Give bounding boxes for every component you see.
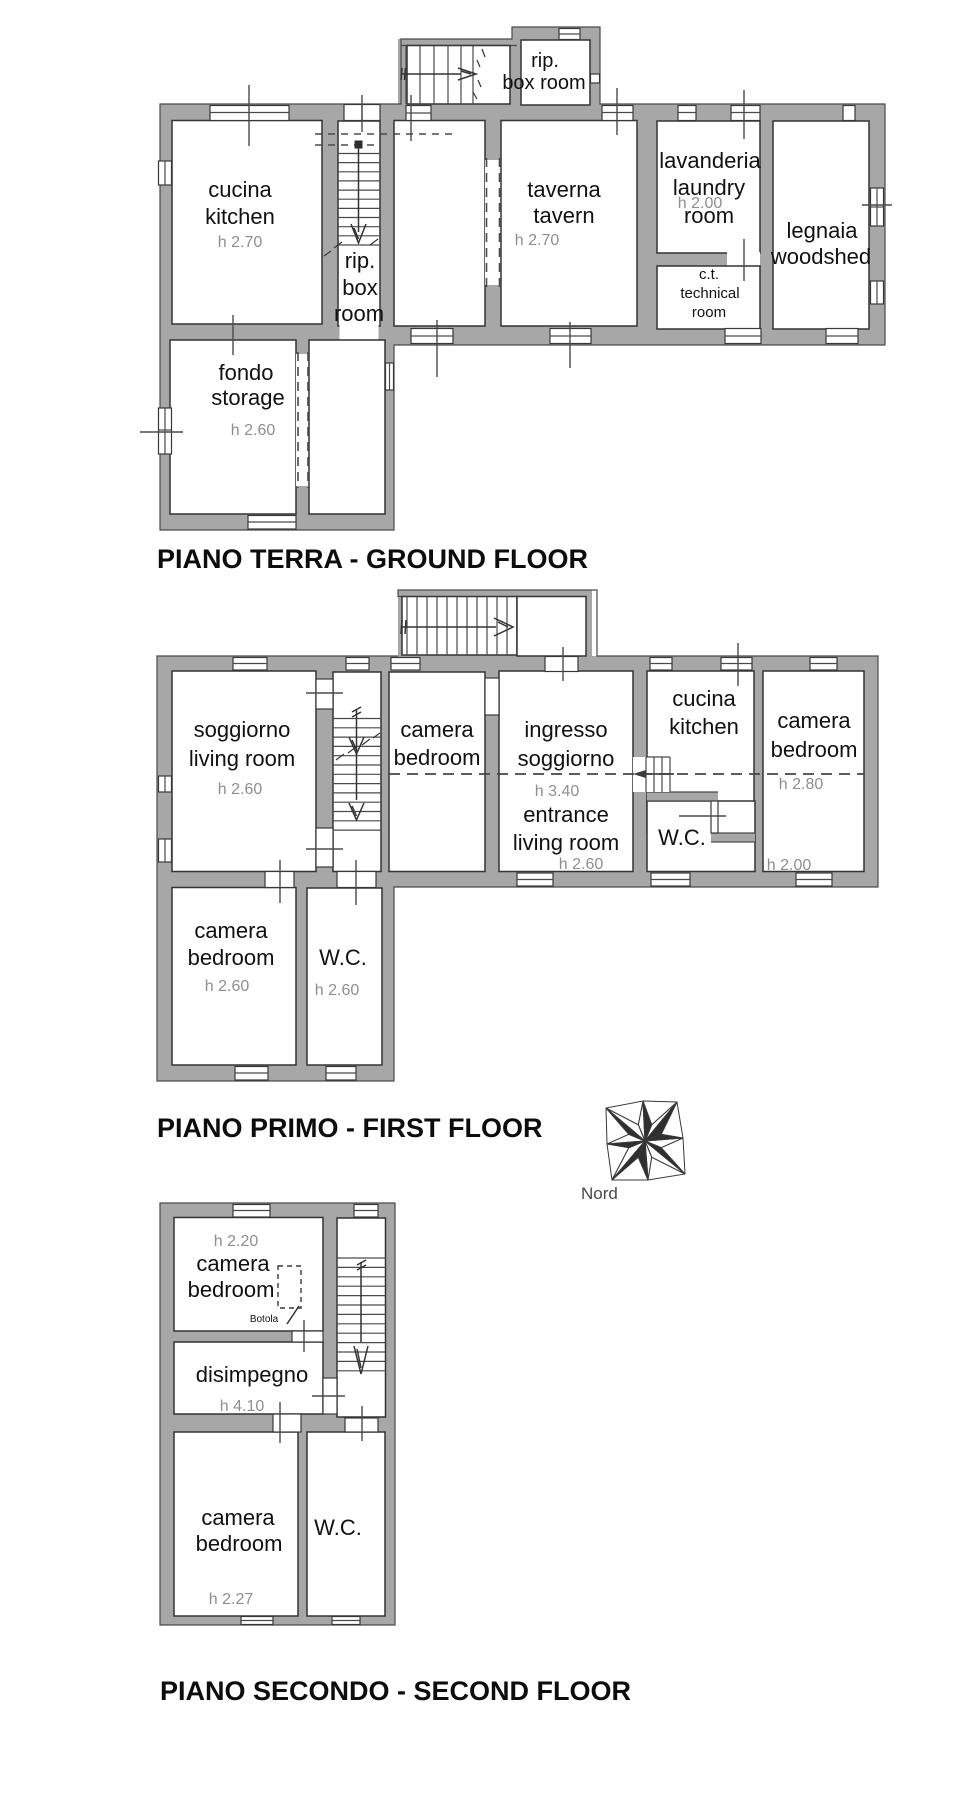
svg-text:soggiorno: soggiorno <box>518 746 615 771</box>
svg-text:camera: camera <box>777 708 851 733</box>
svg-text:h 2.27: h 2.27 <box>209 1591 254 1608</box>
svg-text:ingresso: ingresso <box>524 717 607 742</box>
svg-text:h 2.60: h 2.60 <box>559 856 604 873</box>
svg-text:entrance: entrance <box>523 802 609 827</box>
svg-text:box: box <box>342 275 377 300</box>
svg-text:W.C.: W.C. <box>314 1515 362 1540</box>
svg-text:cucina: cucina <box>672 686 736 711</box>
svg-text:room: room <box>684 203 734 228</box>
svg-text:h 2.60: h 2.60 <box>205 978 250 995</box>
svg-text:kitchen: kitchen <box>205 204 275 229</box>
svg-text:Nord: Nord <box>581 1184 618 1203</box>
svg-text:c.t.: c.t. <box>699 266 719 283</box>
svg-text:tavern: tavern <box>533 203 594 228</box>
svg-text:soggiorno: soggiorno <box>194 717 291 742</box>
svg-text:h 2.70: h 2.70 <box>515 232 560 249</box>
svg-text:room: room <box>334 301 384 326</box>
svg-text:camera: camera <box>194 918 268 943</box>
svg-text:W.C.: W.C. <box>319 945 367 970</box>
svg-text:woodshed: woodshed <box>770 244 871 269</box>
svg-text:storage: storage <box>211 385 284 410</box>
svg-text:legnaia: legnaia <box>787 218 859 243</box>
svg-text:h 2.00: h 2.00 <box>767 857 812 874</box>
svg-text:PIANO SECONDO - SECOND FLOOR: PIANO SECONDO - SECOND FLOOR <box>160 1676 631 1706</box>
svg-text:h 2.60: h 2.60 <box>231 422 276 439</box>
svg-text:rip.: rip. <box>531 50 559 72</box>
svg-text:room: room <box>692 304 726 321</box>
svg-text:cucina: cucina <box>208 177 272 202</box>
svg-text:h 4.10: h 4.10 <box>220 1398 265 1415</box>
svg-text:W.C.: W.C. <box>658 825 706 850</box>
svg-text:h 3.40: h 3.40 <box>535 783 580 800</box>
svg-text:PIANO TERRA - GROUND FLOOR: PIANO TERRA - GROUND FLOOR <box>157 544 588 574</box>
svg-text:bedroom: bedroom <box>196 1531 283 1556</box>
svg-text:h 2.70: h 2.70 <box>218 234 263 251</box>
svg-text:camera: camera <box>201 1505 275 1530</box>
svg-text:kitchen: kitchen <box>669 714 739 739</box>
svg-text:camera: camera <box>400 717 474 742</box>
svg-text:h 2.80: h 2.80 <box>779 776 824 793</box>
svg-text:h 2.20: h 2.20 <box>214 1233 259 1250</box>
svg-text:bedroom: bedroom <box>771 737 858 762</box>
svg-text:bedroom: bedroom <box>394 745 481 770</box>
svg-text:Botola: Botola <box>250 1314 279 1325</box>
svg-text:box room: box room <box>502 72 585 94</box>
svg-text:living room: living room <box>513 830 619 855</box>
svg-text:living room: living room <box>189 746 295 771</box>
svg-text:technical: technical <box>680 285 739 302</box>
svg-text:rip.: rip. <box>345 248 376 273</box>
svg-text:fondo: fondo <box>218 360 273 385</box>
svg-text:taverna: taverna <box>527 177 601 202</box>
svg-text:bedroom: bedroom <box>188 945 275 970</box>
svg-text:camera: camera <box>196 1251 270 1276</box>
svg-text:bedroom: bedroom <box>188 1277 275 1302</box>
svg-text:disimpegno: disimpegno <box>196 1362 309 1387</box>
svg-text:PIANO PRIMO - FIRST FLOOR: PIANO PRIMO - FIRST FLOOR <box>157 1113 543 1143</box>
svg-text:h 2.60: h 2.60 <box>218 781 263 798</box>
svg-text:lavanderia: lavanderia <box>659 148 761 173</box>
svg-text:h 2.60: h 2.60 <box>315 982 360 999</box>
